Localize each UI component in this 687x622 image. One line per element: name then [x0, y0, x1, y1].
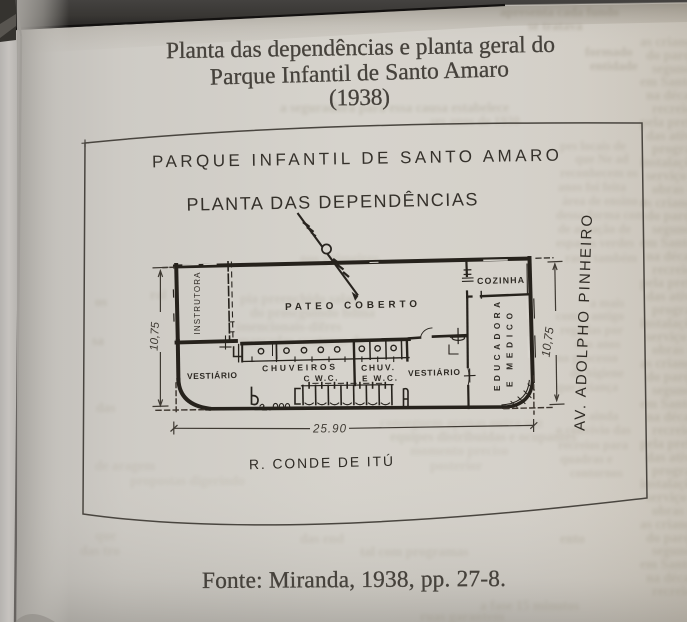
svg-text:entidade: entidade: [590, 58, 638, 73]
svg-text:INSTRUTORA: INSTRUTORA: [193, 272, 202, 335]
svg-text:equipes distribuidas e ocup: equipes distribuidas e ocupantes: [390, 429, 576, 444]
svg-text:VESTIÁRIO: VESTIÁRIO: [408, 366, 461, 378]
svg-text:25.90: 25.90: [312, 424, 347, 436]
svg-text:das tro: das tro: [80, 543, 120, 558]
svg-text:pes locais de: pes locais de: [560, 139, 626, 153]
svg-text:sa: sa: [92, 333, 104, 348]
svg-text:ras e também: ras e também: [565, 251, 638, 265]
svg-text:ento: ento: [560, 531, 585, 546]
svg-text:ses anos de 1930: ses anos de 1930: [430, 113, 520, 128]
svg-text:recreio educativo: recreio educativo: [652, 583, 687, 598]
svg-text:EDUCADORA: EDUCADORA: [493, 302, 502, 391]
svg-text:anos foi feita: anos foi feita: [558, 180, 627, 194]
svg-text:CHUVEIROS: CHUVEIROS: [262, 362, 336, 374]
svg-text:CHUV.: CHUV.: [361, 362, 394, 373]
svg-text:E W.C.: E W.C.: [362, 374, 397, 384]
svg-text:Fonte: Miranda, 1938, pp. 27-8: Fonte: Miranda, 1938, pp. 27-8.: [202, 566, 506, 594]
svg-text:que Ne ad: que Ne ad: [575, 152, 629, 166]
svg-text:os: os: [95, 294, 107, 309]
svg-text:imencionais-difres: imencionais-difres: [236, 319, 342, 334]
svg-text:contornos: contornos: [570, 466, 623, 480]
svg-text:que: que: [95, 528, 116, 543]
svg-text:posterior: posterior: [430, 458, 482, 473]
svg-text:dessa forma com: dessa forma com: [556, 208, 646, 222]
svg-text:quadras e: quadras e: [560, 452, 613, 466]
svg-text:VESTIÁRIO: VESTIÁRIO: [187, 369, 238, 381]
svg-text:ral: ral: [150, 287, 167, 302]
svg-text:das: das: [96, 400, 116, 415]
svg-text:formado: formado: [585, 44, 633, 59]
svg-text:das end: das end: [300, 531, 344, 546]
svg-text:de aragem: de aragem: [95, 458, 156, 473]
svg-text:C W.C.: C W.C.: [303, 374, 337, 384]
svg-text:reconhecem os: reconhecem os: [560, 166, 638, 180]
svg-text:(1938): (1938): [329, 84, 390, 111]
svg-text:ruas garantem: ruas garantem: [420, 609, 505, 622]
svg-text:área de ensino e: área de ensino e: [562, 194, 647, 208]
svg-text:COZINHA: COZINHA: [477, 275, 525, 286]
svg-text:10,75: 10,75: [149, 321, 163, 351]
svg-text:momento preciso: momento preciso: [410, 443, 509, 458]
svg-text:a mais: a mais: [590, 296, 625, 310]
svg-text:propostas digerindo: propostas digerindo: [130, 473, 245, 488]
svg-text:tal com programas: tal com programas: [360, 544, 468, 559]
